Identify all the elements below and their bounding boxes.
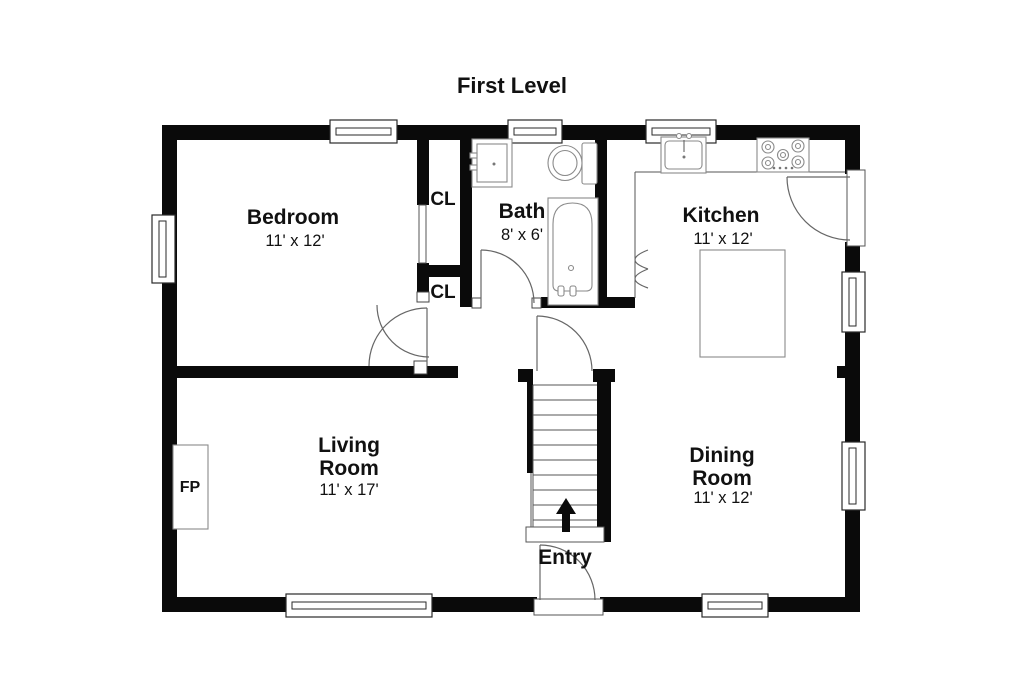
room-dims-bedroom: 11' x 12' — [265, 232, 324, 250]
page-background — [0, 0, 1024, 681]
bathroom-sink — [470, 139, 512, 187]
window-bedroom-left — [152, 215, 175, 283]
page-title: First Level — [457, 73, 567, 98]
window-bath-top — [508, 120, 562, 143]
wall-left — [162, 125, 177, 612]
label-fireplace: FP — [180, 479, 201, 496]
wall-stair-stub-left — [518, 369, 533, 382]
wall-stair-right — [597, 369, 611, 542]
room-dims-dining: 11' x 12' — [693, 489, 752, 507]
wall-stair-left — [527, 382, 533, 473]
stove — [757, 138, 809, 172]
room-dims-kitchen: 11' x 12' — [693, 230, 752, 248]
toilet — [548, 143, 597, 184]
kitchen-island — [700, 250, 785, 357]
wall-closet-divider — [417, 265, 472, 277]
window-bedroom-top — [330, 120, 397, 143]
entry-threshold — [534, 599, 603, 615]
floor-plan-drawing: First Level Bedroom 11' x 12' Bath 8' x … — [0, 0, 1024, 681]
room-label-bedroom: Bedroom — [247, 206, 339, 229]
kitchen-sink — [661, 134, 706, 174]
room-dims-bath: 8' x 6' — [501, 226, 543, 244]
room-dims-living: 11' x 17' — [319, 481, 378, 499]
room-label-living-1: Living — [318, 434, 380, 457]
kitchen-door-frame — [847, 170, 865, 246]
wall-kitchen-stub — [605, 297, 635, 308]
floor-plan-page: First Level Bedroom 11' x 12' Bath 8' x … — [0, 0, 1024, 681]
room-label-dining-1: Dining — [689, 444, 754, 467]
wall-right-stub — [837, 366, 845, 378]
closet-upper-door — [419, 205, 426, 263]
window-kitchen-right — [842, 272, 865, 332]
window-dining-right — [842, 442, 865, 510]
room-label-entry: Entry — [538, 546, 592, 569]
label-closet-upper: CL — [430, 189, 456, 210]
jamb-bedroom-door — [414, 361, 427, 374]
room-label-living-2: Room — [319, 457, 379, 480]
room-label-dining-2: Room — [692, 467, 752, 490]
jamb-bath-door-left — [472, 298, 481, 308]
jamb-closet-lower — [417, 292, 429, 302]
room-label-bath: Bath — [499, 200, 546, 223]
room-label-kitchen: Kitchen — [682, 204, 759, 227]
bathtub — [548, 198, 598, 305]
window-living-bottom — [286, 594, 432, 617]
label-closet-lower: CL — [430, 282, 456, 303]
window-dining-bottom — [702, 594, 768, 617]
